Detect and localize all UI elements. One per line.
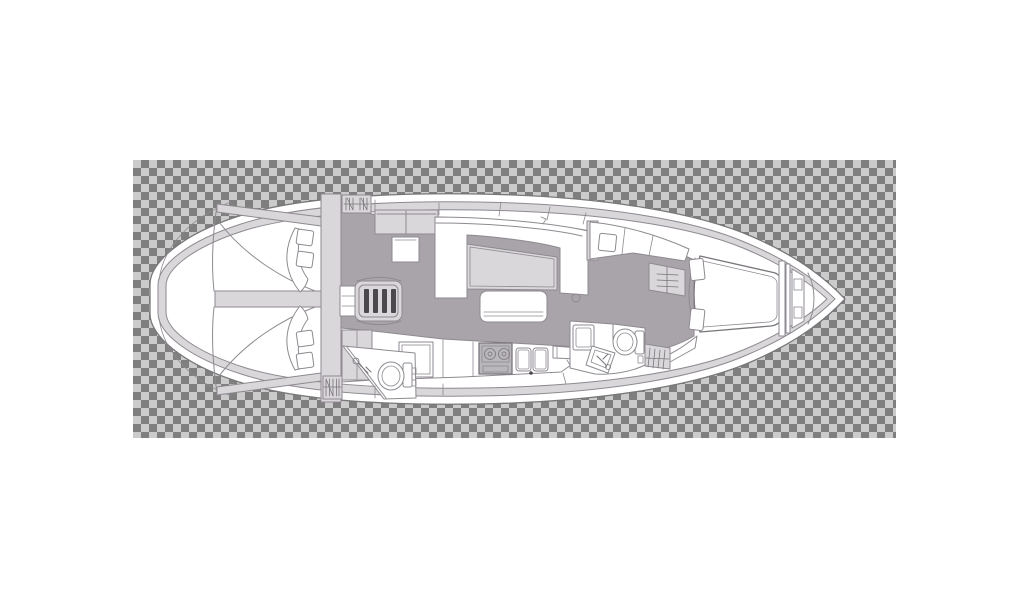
pillow bbox=[689, 308, 705, 330]
bow-partition bbox=[779, 261, 785, 336]
image-canvas bbox=[133, 160, 896, 438]
toilet bbox=[378, 362, 416, 390]
pillow bbox=[296, 251, 314, 268]
pillow bbox=[296, 229, 314, 246]
yacht-floor-plan bbox=[133, 160, 896, 438]
pillow bbox=[296, 352, 314, 369]
locker-outline bbox=[792, 269, 804, 328]
mid-head bbox=[570, 321, 645, 374]
pillow bbox=[296, 330, 314, 347]
slat bbox=[373, 289, 378, 313]
main-bulkhead bbox=[321, 194, 341, 402]
seat-cushion bbox=[598, 233, 617, 252]
slat bbox=[364, 289, 369, 313]
salon-bench bbox=[480, 291, 547, 322]
faucet bbox=[529, 371, 533, 375]
pillow bbox=[689, 258, 705, 280]
cabin-divider-wall bbox=[215, 291, 321, 307]
companionway-steps bbox=[342, 195, 371, 213]
slat bbox=[391, 289, 396, 313]
bow-partition bbox=[786, 264, 790, 333]
seat-back-panel bbox=[340, 286, 357, 316]
slat bbox=[382, 289, 387, 313]
aft-hatch-locker bbox=[323, 376, 342, 399]
chart-table bbox=[392, 237, 419, 262]
stove bbox=[479, 343, 512, 374]
